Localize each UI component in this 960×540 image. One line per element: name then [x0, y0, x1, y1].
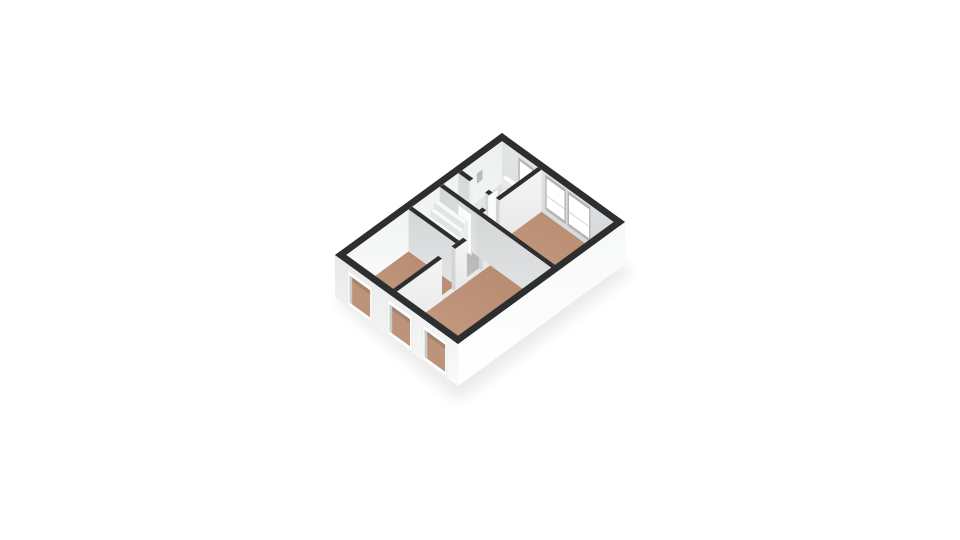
floor-plan-canvas [0, 0, 960, 540]
floor-plan-3d-view [0, 0, 960, 540]
